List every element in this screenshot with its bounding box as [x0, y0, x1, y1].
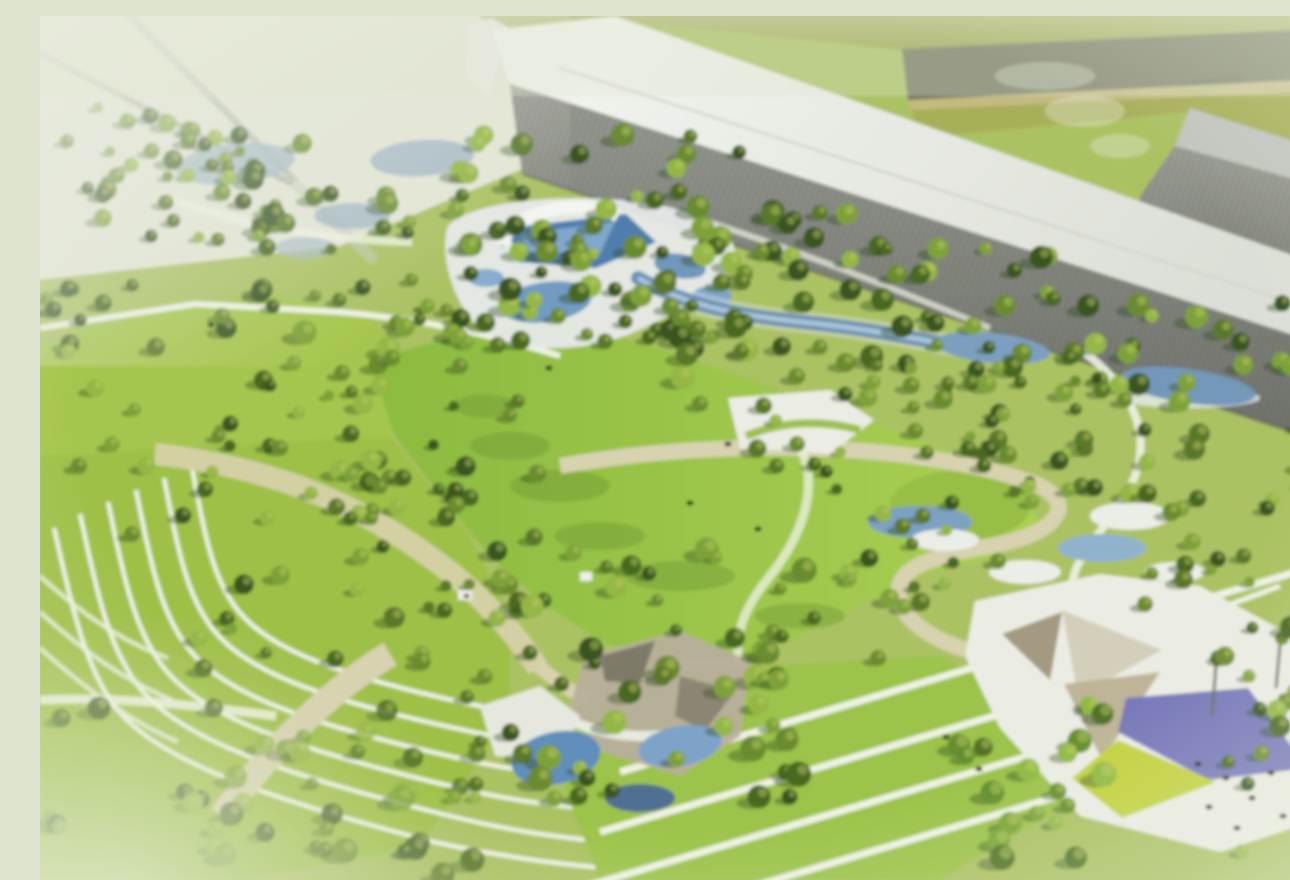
atmosphere — [40, 16, 1290, 880]
vignette — [40, 16, 1290, 880]
scene-root — [40, 16, 1290, 880]
aerial-park-rendering: Aerial rendering of landscaped park with… — [40, 16, 1290, 880]
scene-svg: Aerial rendering of landscaped park with… — [40, 16, 1290, 880]
